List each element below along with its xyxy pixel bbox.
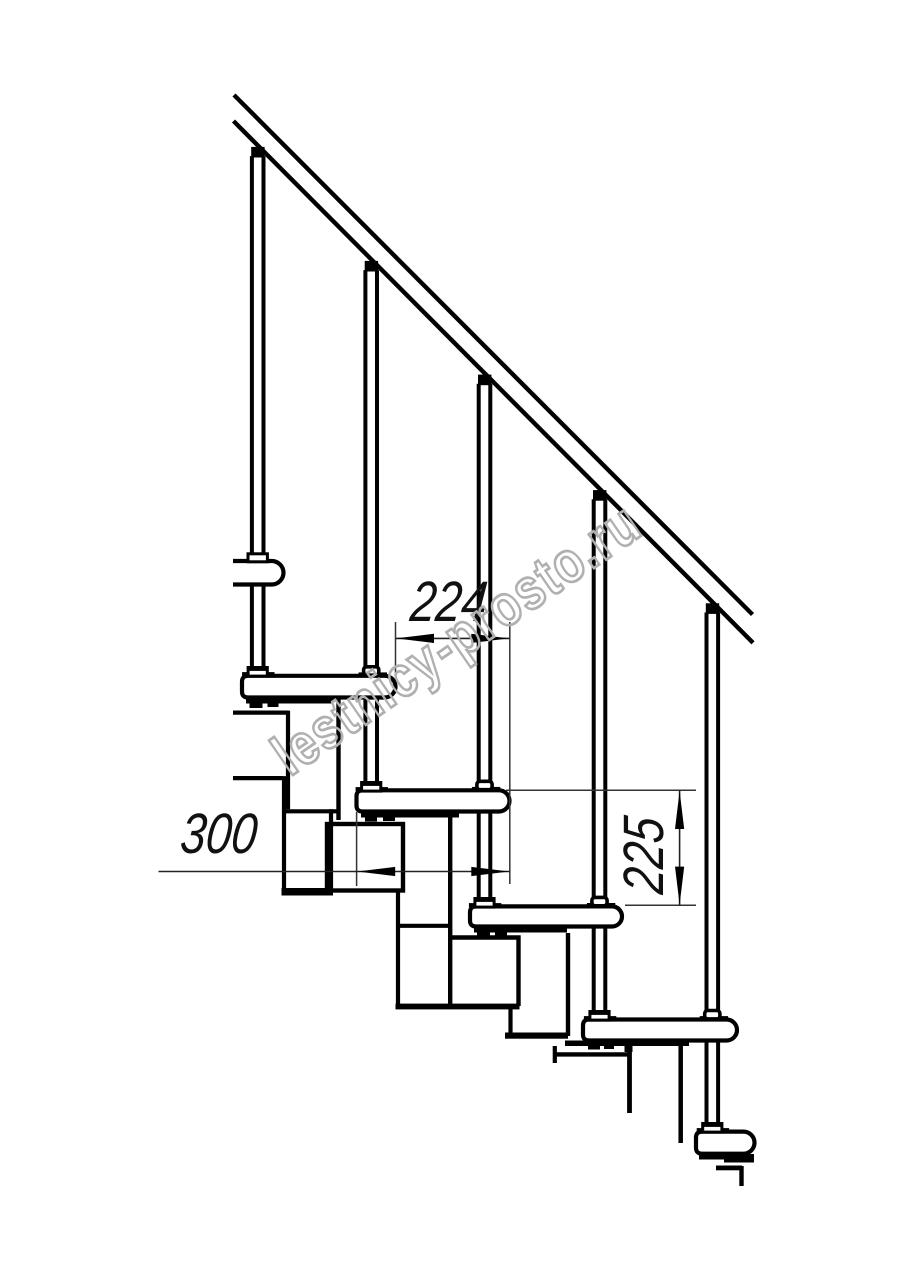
svg-text:225: 225 — [611, 813, 675, 897]
svg-text:300: 300 — [178, 801, 261, 865]
